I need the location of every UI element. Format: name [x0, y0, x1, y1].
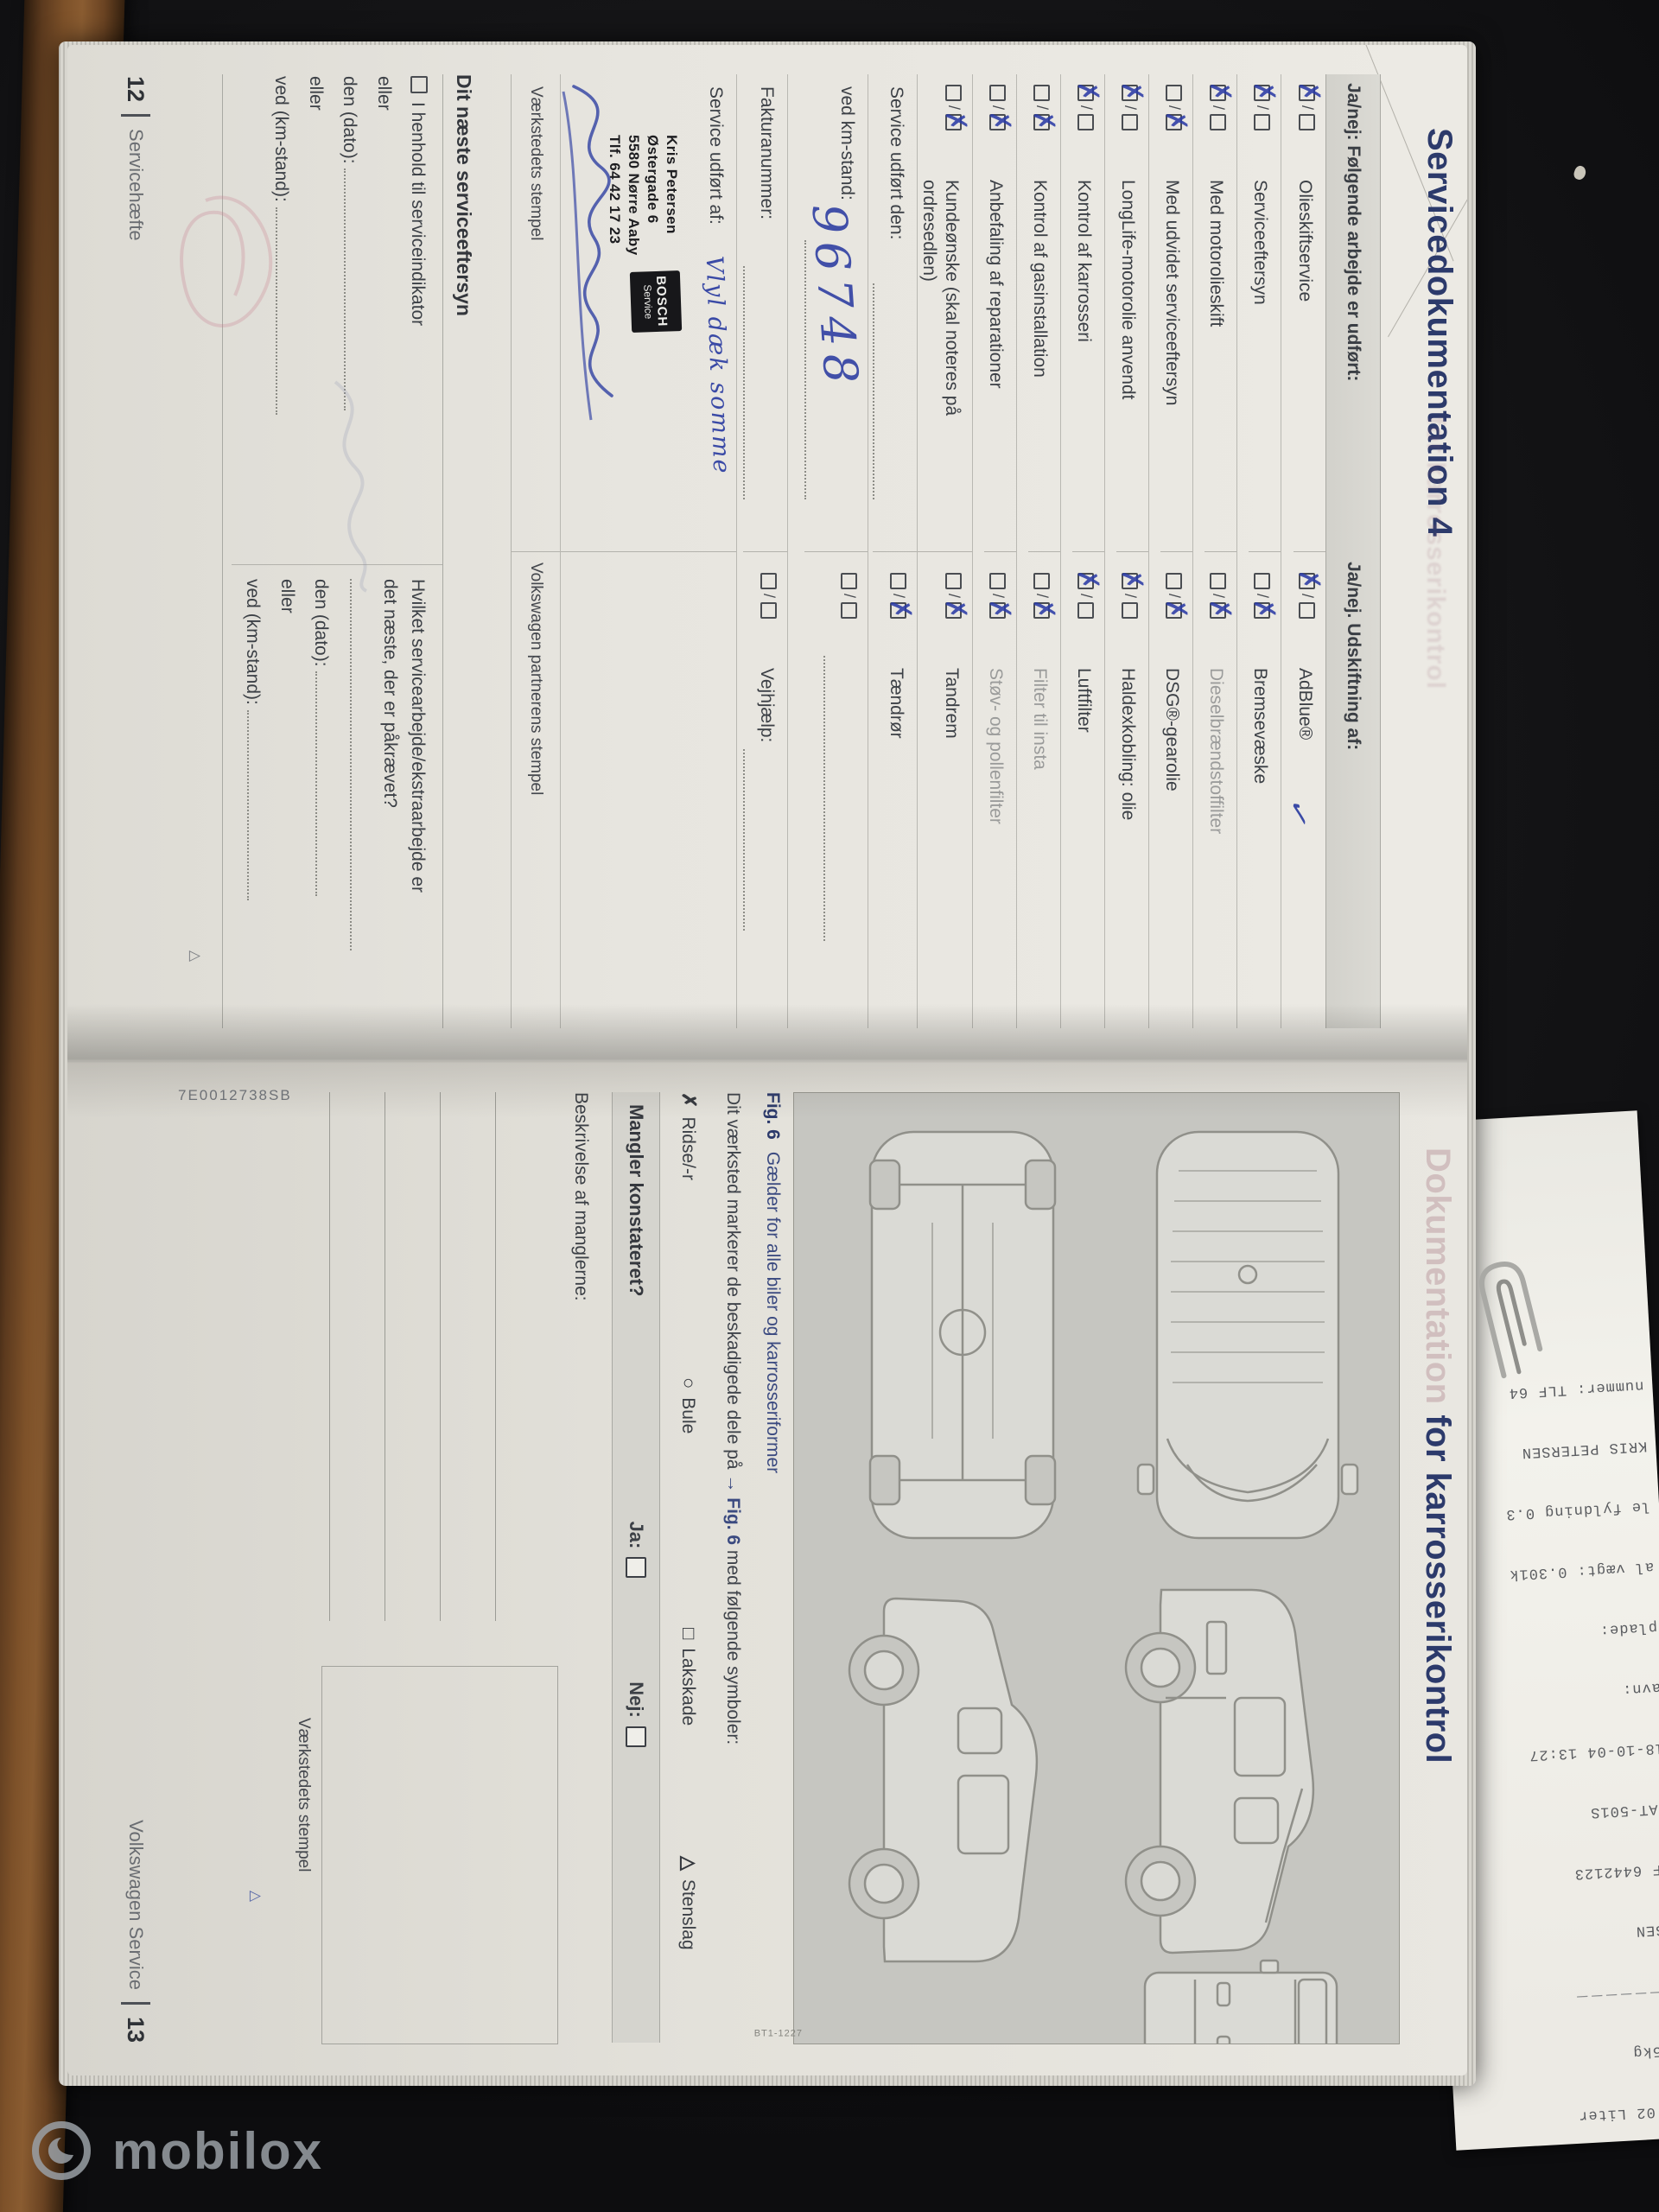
ruled-line — [385, 1092, 385, 1621]
receipt-line: 18-10-04 13:27 — [1528, 1736, 1659, 1766]
indicator-checkbox — [410, 76, 428, 93]
watermark-brand-text: mobilox — [112, 2121, 323, 2181]
defects-question-label: Mangler konstateret? — [625, 1092, 647, 1297]
row-label: Olieskiftservice — [1294, 168, 1316, 308]
partner-stamp-caption: Volkswagen partnerens stempel — [526, 552, 545, 795]
scratch-label: Ridse/-r — [678, 1116, 698, 1180]
table-row: Service udført af: Vlyl dæk somme Kris P… — [560, 74, 736, 1028]
service-date-label: Service udført den: — [885, 74, 907, 283]
row-label: Tændrør — [885, 656, 907, 746]
page-number: 12 — [123, 76, 149, 102]
row-label: AdBlue® — [1294, 656, 1316, 747]
receipt-line: LF 6442123 — [1573, 1856, 1659, 1884]
stamp-name: Kris Petersen — [662, 135, 681, 256]
receipt-line: CAT-501S — [1589, 1796, 1659, 1823]
photo-scene: 10.02 Liter 725kg －－－－－－－ RSEN LF 644212… — [0, 0, 1659, 2212]
stone-chip-label: Stenslag — [678, 1879, 698, 1950]
continuation-triangle: △ — [247, 1891, 264, 1902]
fill-in-line — [743, 266, 762, 499]
defects-question-band: Mangler konstateret? Ja: Nej: — [612, 1092, 660, 2043]
footer-divider — [121, 114, 150, 117]
figure-reference-code: BT1-1227 — [754, 2028, 803, 2038]
paint-damage-symbol: □ — [678, 1628, 700, 1639]
header-left: Ja/nej: Følgende arbejde er udført: — [1343, 74, 1363, 551]
ruled-line — [495, 1092, 496, 1621]
table-row: ✗/Olieskiftservice ✗/AdBlue®✓ — [1281, 74, 1325, 1028]
or-label: eller — [274, 579, 300, 1028]
checkbox-nej — [1299, 114, 1315, 130]
header-right: Ja/nej. Udskiftning af: — [1343, 551, 1363, 750]
faint-pencil-note — [301, 373, 404, 598]
checkbox-ja: ✗ — [1299, 573, 1315, 589]
marking-instruction: Dit værksted markerer de beskadigede del… — [722, 1092, 743, 1745]
no-checkbox — [626, 1726, 646, 1747]
receipt-line: 10.02 Liter — [1577, 2098, 1659, 2126]
done-by-label: Service udført af: — [704, 74, 727, 232]
workshop-stamp-box — [321, 1666, 558, 2044]
checkbox-ja: ✗ — [1299, 85, 1315, 101]
dent-label: Bule — [678, 1397, 698, 1433]
signature-scribble — [551, 74, 646, 437]
page-12: Servicedokumentation 4 for karrosserikon… — [67, 45, 1467, 1061]
table-row: /✗Anbefaling af reparationer /✗Støv- og … — [972, 74, 1016, 1028]
continuation-triangle: △ — [187, 950, 204, 962]
title-faded-part: Dokumentation — [1419, 1147, 1457, 1414]
question-line: Hvilket servicearbejde/ekstraarbejde er — [404, 579, 430, 1028]
table-row: ✗/Kontrol af karrosseri ✗/Luftfilter — [1060, 74, 1104, 1028]
page12-footer: 12 Servicehæfte — [121, 76, 150, 241]
page-title: Dokumentation for karrosserikontrol — [1418, 1147, 1457, 1764]
van-outline-drawings — [794, 1093, 1399, 2044]
receipt-line: al vægt: 0.301k — [1509, 1554, 1655, 1585]
dust-speck — [1573, 164, 1588, 181]
receipt-line: avn: — [1621, 1675, 1659, 1700]
page-number: 13 — [123, 2017, 149, 2043]
km-label: ved (km-stand): — [243, 579, 263, 705]
yes-checkbox — [626, 1557, 646, 1578]
indicator-option-label: I henhold til serviceindikator — [408, 102, 428, 326]
fill-in-line — [823, 656, 842, 941]
booklet-name: Servicehæfte — [124, 129, 147, 241]
footer-divider — [121, 2002, 150, 2005]
checkbox-pair: ✗/ — [1298, 74, 1316, 168]
fill-in-line — [743, 749, 762, 931]
stone-chip-symbol: △ — [678, 1856, 700, 1871]
checkbox-pair: ✗/ — [1298, 563, 1316, 656]
scratch-symbol: ✗ — [678, 1092, 700, 1108]
receipt-line: le fyldning 0.3 — [1505, 1494, 1651, 1524]
table-row: Service udført den: /✗Tændrør — [868, 74, 917, 1028]
receipt-line: RSEN — [1635, 1916, 1659, 1941]
invoice-label: Fakturanummer: — [755, 74, 778, 266]
page13-footer: Volkswagen Service 13 — [121, 1820, 150, 2043]
no-label: Nej: — [625, 1681, 647, 1718]
receipt-divider: －－－－－－－ — [1574, 1977, 1659, 2005]
table-header-row: Ja/nej: Følgende arbejde er udført: Ja/n… — [1325, 74, 1381, 1028]
workshop-stamp-caption: Værkstedets stempel — [294, 1718, 313, 1872]
service-booklet: Servicedokumentation 4 for karrosserikon… — [67, 45, 1467, 2075]
bleed-through-text: for karrosserikontrol — [1421, 416, 1450, 690]
table-row: ✗/Med motorolieskift /✗Dieselbrændstoffi… — [1192, 74, 1236, 1028]
dent-symbol: ○ — [678, 1377, 700, 1389]
next-service-heading: Dit næste serviceeftersyn — [442, 74, 475, 1028]
roadside-label: Vejhjælp: — [755, 656, 778, 749]
page-13: Dokumentation for karrosserikontrol — [67, 1061, 1467, 2075]
question-line: det næste, der er påkrævet? — [377, 579, 403, 1028]
figure-caption-text: Gælder for alle biler og karrosseriforme… — [763, 1152, 783, 1473]
faint-pink-scribble — [162, 175, 301, 365]
receipt-line: plade: — [1599, 1615, 1658, 1641]
checkbox-nej — [1299, 602, 1315, 619]
table-row: ✗/LongLife-motorolie anvendt ✗/Haldexkob… — [1104, 74, 1148, 1028]
yes-label: Ja: — [625, 1522, 647, 1549]
table-row: /✗Kundeønske (skal noteres på ordresedle… — [917, 74, 972, 1028]
paint-damage-label: Lakskade — [678, 1648, 698, 1726]
figure-number: Fig. 6 — [763, 1092, 783, 1140]
table-row: /✗Kontrol af gasinstallation /✗Filter ti… — [1016, 74, 1060, 1028]
receipt-line: KRIS PETERSEN — [1521, 1433, 1648, 1463]
mobilox-logo-icon — [29, 2119, 93, 2183]
description-label: Beskrivelse af manglerne: — [570, 1092, 591, 1301]
brand-footer: Volkswagen Service — [124, 1820, 147, 1990]
figure-caption: Fig. 6Gælder for alle biler og karrosser… — [762, 1092, 783, 1473]
service-table: Ja/nej: Følgende arbejde er udført: Ja/n… — [511, 74, 1381, 1028]
table-row: ved km-stand: 96748 / — [787, 74, 868, 1028]
handwritten-note: Vlyl dæk somme — [701, 256, 735, 475]
table-row: ✗/Serviceeftersyn /✗Bremsevæske — [1236, 74, 1281, 1028]
workshop-stamp-caption: Værkstedets stempel — [526, 74, 545, 240]
table-row: Fakturanummer: /Vejhjælp: — [736, 74, 787, 1028]
ruled-line — [329, 1092, 330, 1621]
fill-in-line — [873, 283, 892, 499]
form-part-number: 7E0012738SB — [178, 1087, 292, 1104]
date-label: den (dato): — [340, 76, 359, 164]
watermark: mobilox — [29, 2119, 323, 2183]
figure-6-body-diagram: BT1-1227 — [793, 1092, 1400, 2044]
handwritten-scribble: ✓ — [1279, 795, 1319, 829]
figure-reference: → Fig. 6 — [723, 1474, 743, 1545]
table-row: /✗Med udvidet serviceeftersyn /✗DSG®-gea… — [1148, 74, 1192, 1028]
title-solid-part: for karrosserikontrol — [1419, 1414, 1457, 1764]
ruled-line — [440, 1092, 441, 1621]
receipt-line: 725kg — [1632, 2037, 1659, 2063]
